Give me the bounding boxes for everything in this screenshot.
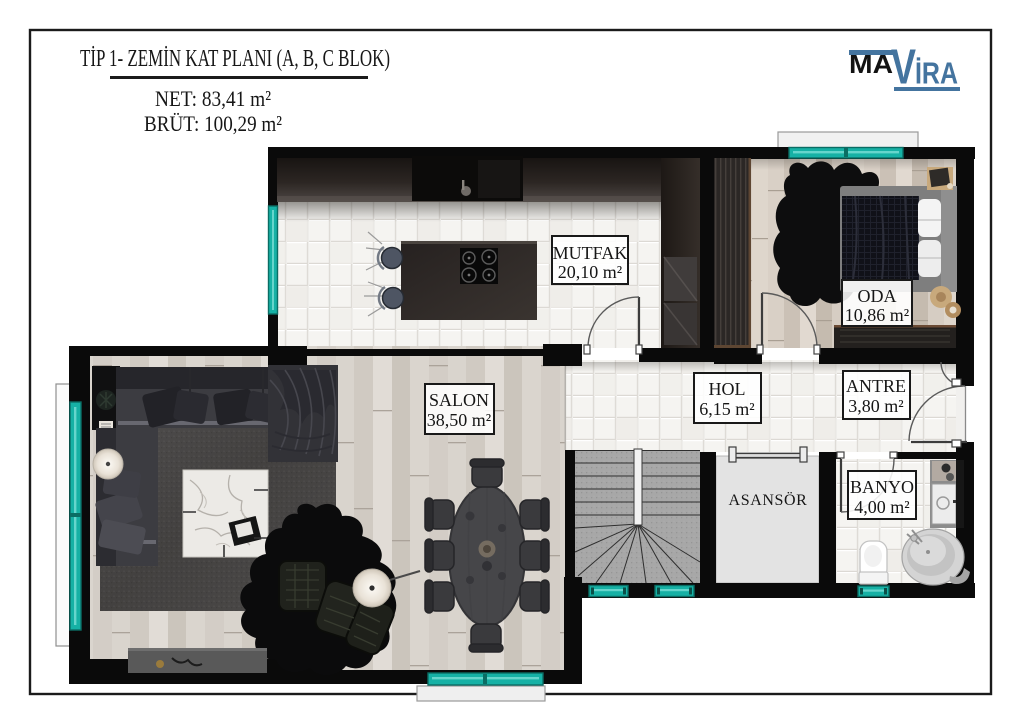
svg-text:38,50 m²: 38,50 m² [427, 410, 491, 430]
svg-text:ODA: ODA [858, 286, 897, 306]
svg-text:ANTRE: ANTRE [846, 376, 906, 396]
svg-text:6,15 m²: 6,15 m² [699, 399, 754, 419]
svg-text:NET: 83,41 m²: NET: 83,41 m² [155, 86, 271, 111]
svg-text:HOL: HOL [709, 379, 746, 399]
svg-text:MA: MA [849, 49, 893, 79]
svg-text:BRÜT: 100,29 m²: BRÜT: 100,29 m² [144, 111, 282, 136]
svg-text:BANYO: BANYO [850, 477, 914, 497]
svg-text:10,86 m²: 10,86 m² [845, 305, 909, 325]
svg-text:MUTFAK: MUTFAK [553, 243, 628, 263]
svg-text:20,10 m²: 20,10 m² [558, 262, 622, 282]
svg-text:ASANSÖR: ASANSÖR [729, 491, 808, 509]
svg-text:3,80 m²: 3,80 m² [848, 396, 903, 416]
svg-text:V: V [891, 41, 916, 95]
svg-text:SALON: SALON [429, 390, 489, 410]
svg-text:İRA: İRA [915, 56, 958, 91]
svg-text:4,00 m²: 4,00 m² [854, 497, 909, 517]
svg-text:TİP 1- ZEMİN KAT PLANI (A, B,: TİP 1- ZEMİN KAT PLANI (A, B, C BLOK) [80, 46, 390, 72]
